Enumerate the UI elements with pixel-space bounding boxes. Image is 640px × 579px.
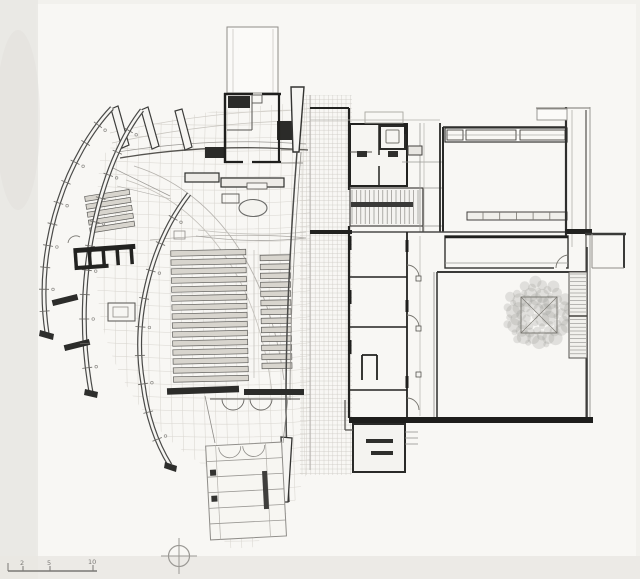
tree-foliage xyxy=(504,303,512,311)
pew-row xyxy=(172,330,247,337)
courtyard-stair xyxy=(569,272,587,358)
south-bench-poche xyxy=(244,389,304,395)
stair-flight xyxy=(366,439,393,443)
floor-fixture xyxy=(108,303,135,321)
column xyxy=(416,372,421,377)
scale-label-2: 2 xyxy=(20,559,24,567)
wall-poche xyxy=(228,96,250,108)
pew-row xyxy=(173,348,248,355)
ramp-post xyxy=(210,470,216,476)
pew-row xyxy=(172,285,247,292)
wc-fixture xyxy=(357,151,367,157)
sanctuary-bench xyxy=(185,173,219,182)
tree-foliage xyxy=(543,341,549,347)
scale-label-10: 10 xyxy=(88,558,96,566)
column xyxy=(416,276,421,281)
pew-row xyxy=(171,276,246,283)
pew-row xyxy=(260,273,290,279)
floor-plan-drawing: 2 5 10 xyxy=(0,0,640,579)
tree-foliage xyxy=(506,314,512,320)
tree-foliage xyxy=(525,340,531,346)
pew-row xyxy=(172,303,247,310)
entry-ramp xyxy=(206,442,287,540)
parapet xyxy=(537,109,567,120)
wc-fixture xyxy=(388,151,398,157)
pew-row xyxy=(171,249,246,256)
pew-row xyxy=(262,354,292,360)
pew-row xyxy=(261,291,291,297)
wall-tick xyxy=(80,294,90,295)
stair-flight xyxy=(371,451,393,455)
pew-row xyxy=(172,312,247,319)
tree-foliage xyxy=(503,320,511,328)
tree-foliage xyxy=(529,276,541,288)
altar-ellipse xyxy=(239,200,267,217)
ramp-post xyxy=(211,496,217,502)
refectory-room xyxy=(445,236,569,269)
pew-row xyxy=(171,267,246,274)
tree-foliage xyxy=(547,281,559,293)
column xyxy=(416,326,421,331)
pew-row xyxy=(173,375,248,382)
wall-poche xyxy=(205,147,226,158)
pew-row xyxy=(262,363,292,369)
tree-foliage xyxy=(520,281,530,291)
sanctuary-step xyxy=(247,183,267,189)
pew-row xyxy=(172,294,247,301)
pew-row xyxy=(173,339,248,346)
pew-row xyxy=(173,366,248,373)
pew-row xyxy=(260,255,290,261)
bell-tower xyxy=(227,27,278,93)
pew-row xyxy=(172,321,247,328)
tree-foliage xyxy=(505,292,515,302)
lower-room xyxy=(353,424,405,472)
pew-row xyxy=(261,309,291,315)
stair-rail xyxy=(351,202,413,207)
pew-row xyxy=(261,282,291,288)
hall-bench xyxy=(467,212,567,220)
tree-foliage xyxy=(532,335,546,349)
pew-row xyxy=(261,300,291,306)
nave-pews-main-bank xyxy=(171,249,249,382)
pew-row xyxy=(171,258,246,265)
shower-room xyxy=(380,126,405,149)
pew-row xyxy=(173,357,248,364)
south-wall-poche xyxy=(349,417,593,423)
tree-foliage xyxy=(512,329,518,335)
wc-block xyxy=(350,124,407,186)
scale-label-5: 5 xyxy=(47,559,51,567)
mid-stair xyxy=(350,188,423,226)
pew-row xyxy=(260,264,290,270)
tree-foliage xyxy=(513,335,521,343)
scanned-plan-page: 2 5 10 xyxy=(0,0,640,579)
